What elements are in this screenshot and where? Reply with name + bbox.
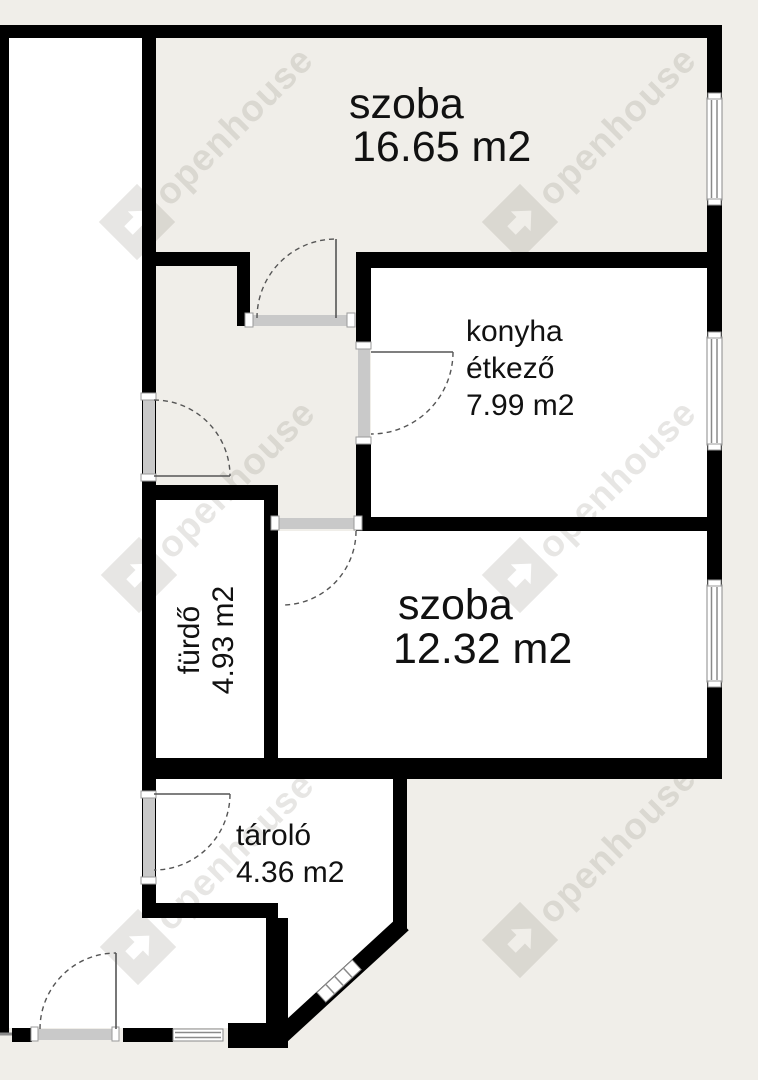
wall-segment: [356, 252, 722, 268]
wall-segment: [356, 252, 371, 348]
room-fill-left-unit: [9, 38, 142, 1028]
threshold-cap: [354, 516, 362, 530]
wall-segment: [356, 517, 708, 531]
threshold-cap: [141, 791, 156, 798]
threshold-cap: [356, 437, 371, 444]
wall-segment: [0, 25, 722, 38]
wall-segment: [142, 252, 250, 266]
wall-segment: [0, 38, 9, 1033]
wall-segment: [393, 779, 407, 930]
window: [173, 1029, 223, 1041]
room-label-konyha-name2: étkező: [466, 352, 554, 385]
window: [707, 580, 722, 687]
room-label-tarolo-area: 4.36 m2: [236, 856, 344, 889]
door-threshold: [143, 797, 155, 878]
wall-segment: [142, 903, 278, 918]
wall-segment: [142, 485, 278, 500]
room-label-konyha-name: konyha: [466, 315, 563, 348]
room-label-szoba-large-area: 16.65 m2: [352, 123, 531, 171]
threshold-cap: [245, 313, 253, 327]
threshold-cap: [141, 877, 156, 884]
room-label-szoba-small-name: szoba: [398, 581, 513, 629]
door-threshold: [358, 348, 370, 438]
wall-segment: [12, 1028, 32, 1042]
door-threshold: [143, 399, 155, 475]
room-label-furdo-area: 4.93 m2: [207, 586, 240, 694]
room-label-furdo-name: fürdő: [173, 606, 206, 674]
threshold-cap: [141, 393, 156, 400]
threshold-cap: [271, 516, 279, 530]
threshold-cap: [141, 474, 156, 481]
threshold-cap: [356, 342, 371, 349]
room-label-tarolo-name: tároló: [236, 819, 311, 852]
threshold-cap: [112, 1027, 119, 1041]
wall-segment: [123, 1028, 173, 1042]
room-label-konyha-area: 7.99 m2: [466, 389, 574, 422]
room-label-szoba-small-area: 12.32 m2: [393, 625, 572, 673]
door-threshold: [278, 518, 355, 529]
room-label-szoba-large-name: szoba: [349, 80, 464, 128]
door-threshold: [250, 315, 348, 326]
threshold-cap: [347, 313, 355, 327]
wall-segment: [142, 758, 722, 779]
wall-segment: [266, 918, 288, 1028]
window: [707, 93, 722, 205]
threshold-cap: [31, 1027, 38, 1041]
window: [707, 332, 722, 450]
door-threshold: [37, 1029, 113, 1040]
floor-plan: openhouse openhouse openhouse openhouse …: [0, 0, 758, 1080]
